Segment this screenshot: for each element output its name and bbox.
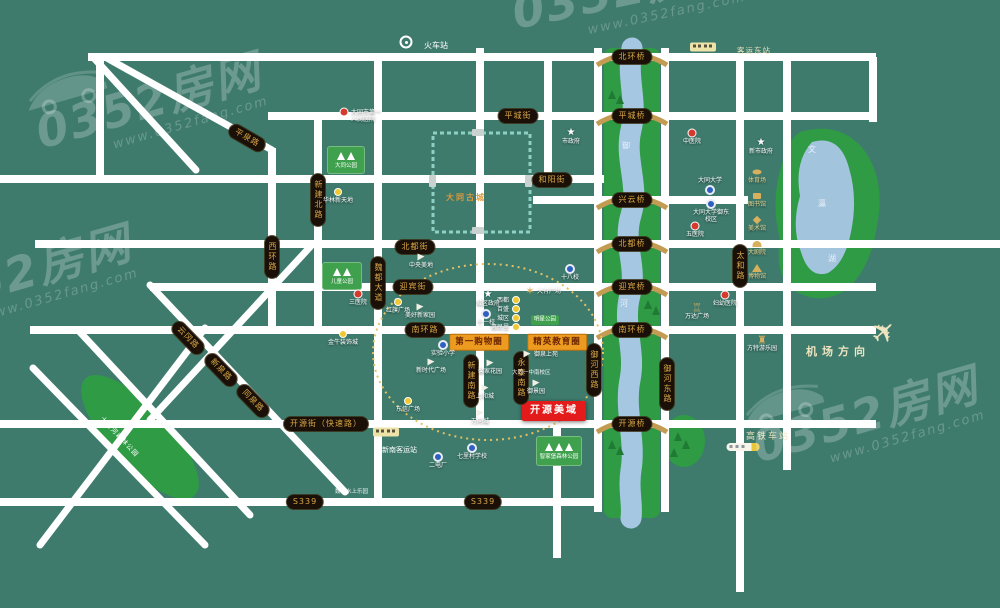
road-pill: 迎宾街 (394, 280, 433, 294)
bus-window (381, 430, 384, 433)
trees-icon (332, 268, 352, 276)
poi-label: 西都 (497, 297, 509, 304)
hosp-icon (340, 108, 349, 117)
mall-icon (339, 330, 347, 338)
flag-icon (533, 380, 540, 387)
poi-label: 大同大学 (698, 177, 722, 184)
landmark-icon: ✶ (525, 286, 534, 297)
airplane-icon: ✈ (865, 313, 904, 352)
flag-icon (477, 410, 484, 417)
tree-icon (555, 443, 563, 451)
school-icon (438, 340, 448, 350)
zone-badge: 第一购物圈 (449, 334, 509, 351)
trees-icon (336, 152, 356, 160)
train-window (742, 445, 745, 448)
trees-icon (544, 443, 574, 451)
bridge-pill: 开源桥 (613, 417, 652, 431)
poi-label: 馨家花园 (478, 368, 502, 375)
zone-badge: 精英教育圈 (527, 334, 587, 351)
river-name-char: 河 (620, 300, 628, 308)
mall-icon (512, 323, 520, 331)
map-text: 客运东站 (737, 47, 771, 55)
bus-icon (373, 428, 399, 437)
road-pill: 平泉路 (227, 122, 268, 154)
landmark-icon: ♖ (692, 303, 702, 314)
map-overlays: 开源美域 平城街和阳街北都街迎宾街南环路开源街（快速路）S339S339魏都大道… (0, 0, 1000, 608)
poi-label: 万达广场 (685, 313, 709, 320)
train-nose (752, 443, 760, 451)
mall-icon (394, 298, 402, 306)
map-text: 魏都水上乐园 (335, 490, 368, 496)
road-pill: 开源街（快速路） (284, 417, 368, 431)
poi-label: 方特游乐园 (747, 345, 777, 352)
poi-label: 新市政府 (749, 148, 773, 155)
road-pill: 同泉路 (234, 382, 271, 420)
school-icon (565, 264, 575, 274)
poi-label: 大同市第一人民医院 (351, 109, 385, 123)
lake-name-char: 湖 (828, 255, 836, 263)
poi-label: 妇幼医院 (713, 300, 737, 307)
poi-label: 三医院 (349, 299, 367, 306)
railway-station-icon (400, 36, 413, 49)
bridge-pill: 北环桥 (613, 50, 652, 64)
road-pill: 新泉路 (202, 351, 239, 389)
road-pill: 永泰南路 (514, 352, 528, 404)
bus-window (387, 430, 390, 433)
road-pill: 魏都大道 (371, 257, 385, 309)
lake-name-char: 瀛 (818, 200, 826, 208)
poi-label: 市政府 (562, 138, 580, 145)
road-pill: 太和路 (733, 245, 747, 287)
bridge-pill: 北都桥 (613, 237, 652, 251)
flag-icon (524, 351, 531, 358)
poi-label: 十八校 (561, 274, 579, 281)
poi-label: 大有广场 (537, 288, 561, 295)
tree-icon (333, 268, 341, 276)
park-label: 智家堡森林公园 (540, 452, 579, 460)
government-star-icon: ★ (484, 290, 493, 300)
location-map: 开源美域 平城街和阳街北都街迎宾街南环路开源街（快速路）S339S339魏都大道… (0, 0, 1000, 608)
poi-label: 五医院 (686, 231, 704, 238)
flag-icon (428, 359, 435, 366)
road-pill: 云冈路 (169, 319, 206, 357)
project-marker: 开源美域 (522, 401, 586, 421)
government-star-icon: ★ (567, 128, 576, 138)
poi-label: 中央美地 (409, 262, 433, 269)
poi-label: 大同大学御东校区 (692, 209, 730, 223)
park-sign: 智家堡森林公园 (536, 436, 582, 466)
mall-icon (512, 296, 520, 304)
park-label: 大同公园 (335, 161, 357, 169)
mall-icon (512, 305, 520, 313)
road-pill: 北都街 (396, 240, 435, 254)
tree-icon (347, 152, 355, 160)
civic-label: 大剧院 (748, 249, 766, 256)
poi-label: 华林新天地 (323, 197, 353, 204)
park-label: 儿童公园 (331, 277, 353, 285)
lake-name-char: 文 (808, 146, 816, 154)
map-text: 大同古城 (446, 194, 486, 202)
road-pill: 和阳街 (533, 173, 572, 187)
poi-label: 御泉上苑 (534, 351, 558, 358)
river-name-char: 御 (622, 142, 630, 150)
poi-label: 惠民里 (491, 324, 509, 331)
road-pill: 御河东路 (660, 358, 674, 410)
map-text: 大同一中南校区 (512, 371, 551, 377)
civic-building-icon (753, 216, 761, 224)
hosp-icon (688, 129, 697, 138)
poi-label: 新时代广场 (416, 367, 446, 374)
landmark-icon: ♜ (757, 335, 767, 346)
school-icon (433, 452, 443, 462)
poi-label: 上和城 (476, 393, 494, 400)
mall-icon (334, 188, 342, 196)
bus-window (376, 430, 379, 433)
road-pill: 平城街 (499, 109, 538, 123)
civic-building-icon (753, 241, 762, 247)
school-icon (706, 199, 716, 209)
mall-icon (404, 397, 412, 405)
poi-label: 美好新家园 (405, 312, 435, 319)
bridge-pill: 兴云桥 (613, 193, 652, 207)
civic-label: 体育场 (748, 177, 766, 184)
hosp-icon (354, 290, 363, 299)
map-text: 火车站 (424, 42, 448, 50)
bus-icon (690, 43, 716, 52)
park-sign: 大同公园 (327, 146, 365, 174)
school-icon (481, 309, 491, 319)
mall-icon (512, 314, 520, 322)
forest-park-label: 十里河森林公园 (99, 413, 142, 458)
government-star-icon: ★ (757, 138, 766, 148)
flag-icon (417, 304, 424, 311)
road-pill: 西环路 (265, 236, 279, 278)
train-window (736, 445, 739, 448)
flag-icon (482, 385, 489, 392)
poi-label: 城区 (497, 315, 509, 322)
poi-label: 万向城 (471, 418, 489, 425)
school-icon (705, 185, 715, 195)
park-sign: 儿童公园 (322, 262, 362, 290)
civic-label: 博物馆 (748, 273, 766, 280)
tree-icon (343, 268, 351, 276)
poi-label: 百盛 (497, 306, 509, 313)
school-icon (467, 443, 477, 453)
poi-label: 金牛装饰城 (328, 339, 358, 346)
train-icon (727, 443, 760, 451)
map-text: 高铁车站 (746, 433, 790, 442)
flag-icon (418, 254, 425, 261)
tree-icon (337, 152, 345, 160)
civic-label: 图书馆 (748, 201, 766, 208)
bus-window (693, 45, 696, 48)
civic-building-icon (752, 264, 762, 272)
bus-window (392, 430, 395, 433)
map-text: 新南客运站 (382, 447, 417, 454)
train-window (730, 445, 733, 448)
bus-window (704, 45, 707, 48)
road-pill: S339 (465, 495, 501, 509)
park-mini-label: 明星公园 (531, 315, 559, 325)
civic-label: 美术馆 (748, 225, 766, 232)
tree-icon (545, 443, 553, 451)
station-dot (405, 41, 408, 44)
bridge-pill: 平城桥 (613, 109, 652, 123)
bus-window (709, 45, 712, 48)
poi-label: 御景园 (527, 388, 545, 395)
road-pill: S339 (287, 495, 323, 509)
poi-label: 东信广场 (396, 406, 420, 413)
flag-icon (487, 360, 494, 367)
map-text: 机场方向 (806, 346, 870, 357)
poi-label: 二电厂 (429, 462, 447, 469)
road-pill: 御河西路 (587, 344, 601, 396)
bus-window (698, 45, 701, 48)
poi-label: 实验小学 (431, 350, 455, 357)
bridge-pill: 南环桥 (613, 323, 652, 337)
hosp-icon (721, 291, 730, 300)
civic-building-icon (753, 170, 762, 175)
civic-building-icon (753, 193, 761, 199)
tree-icon (565, 443, 573, 451)
poi-label: 中医院 (683, 138, 701, 145)
bridge-pill: 迎宾桥 (613, 280, 652, 294)
poi-label: 七里村学校 (457, 453, 487, 460)
road-pill: 南环路 (406, 323, 445, 337)
